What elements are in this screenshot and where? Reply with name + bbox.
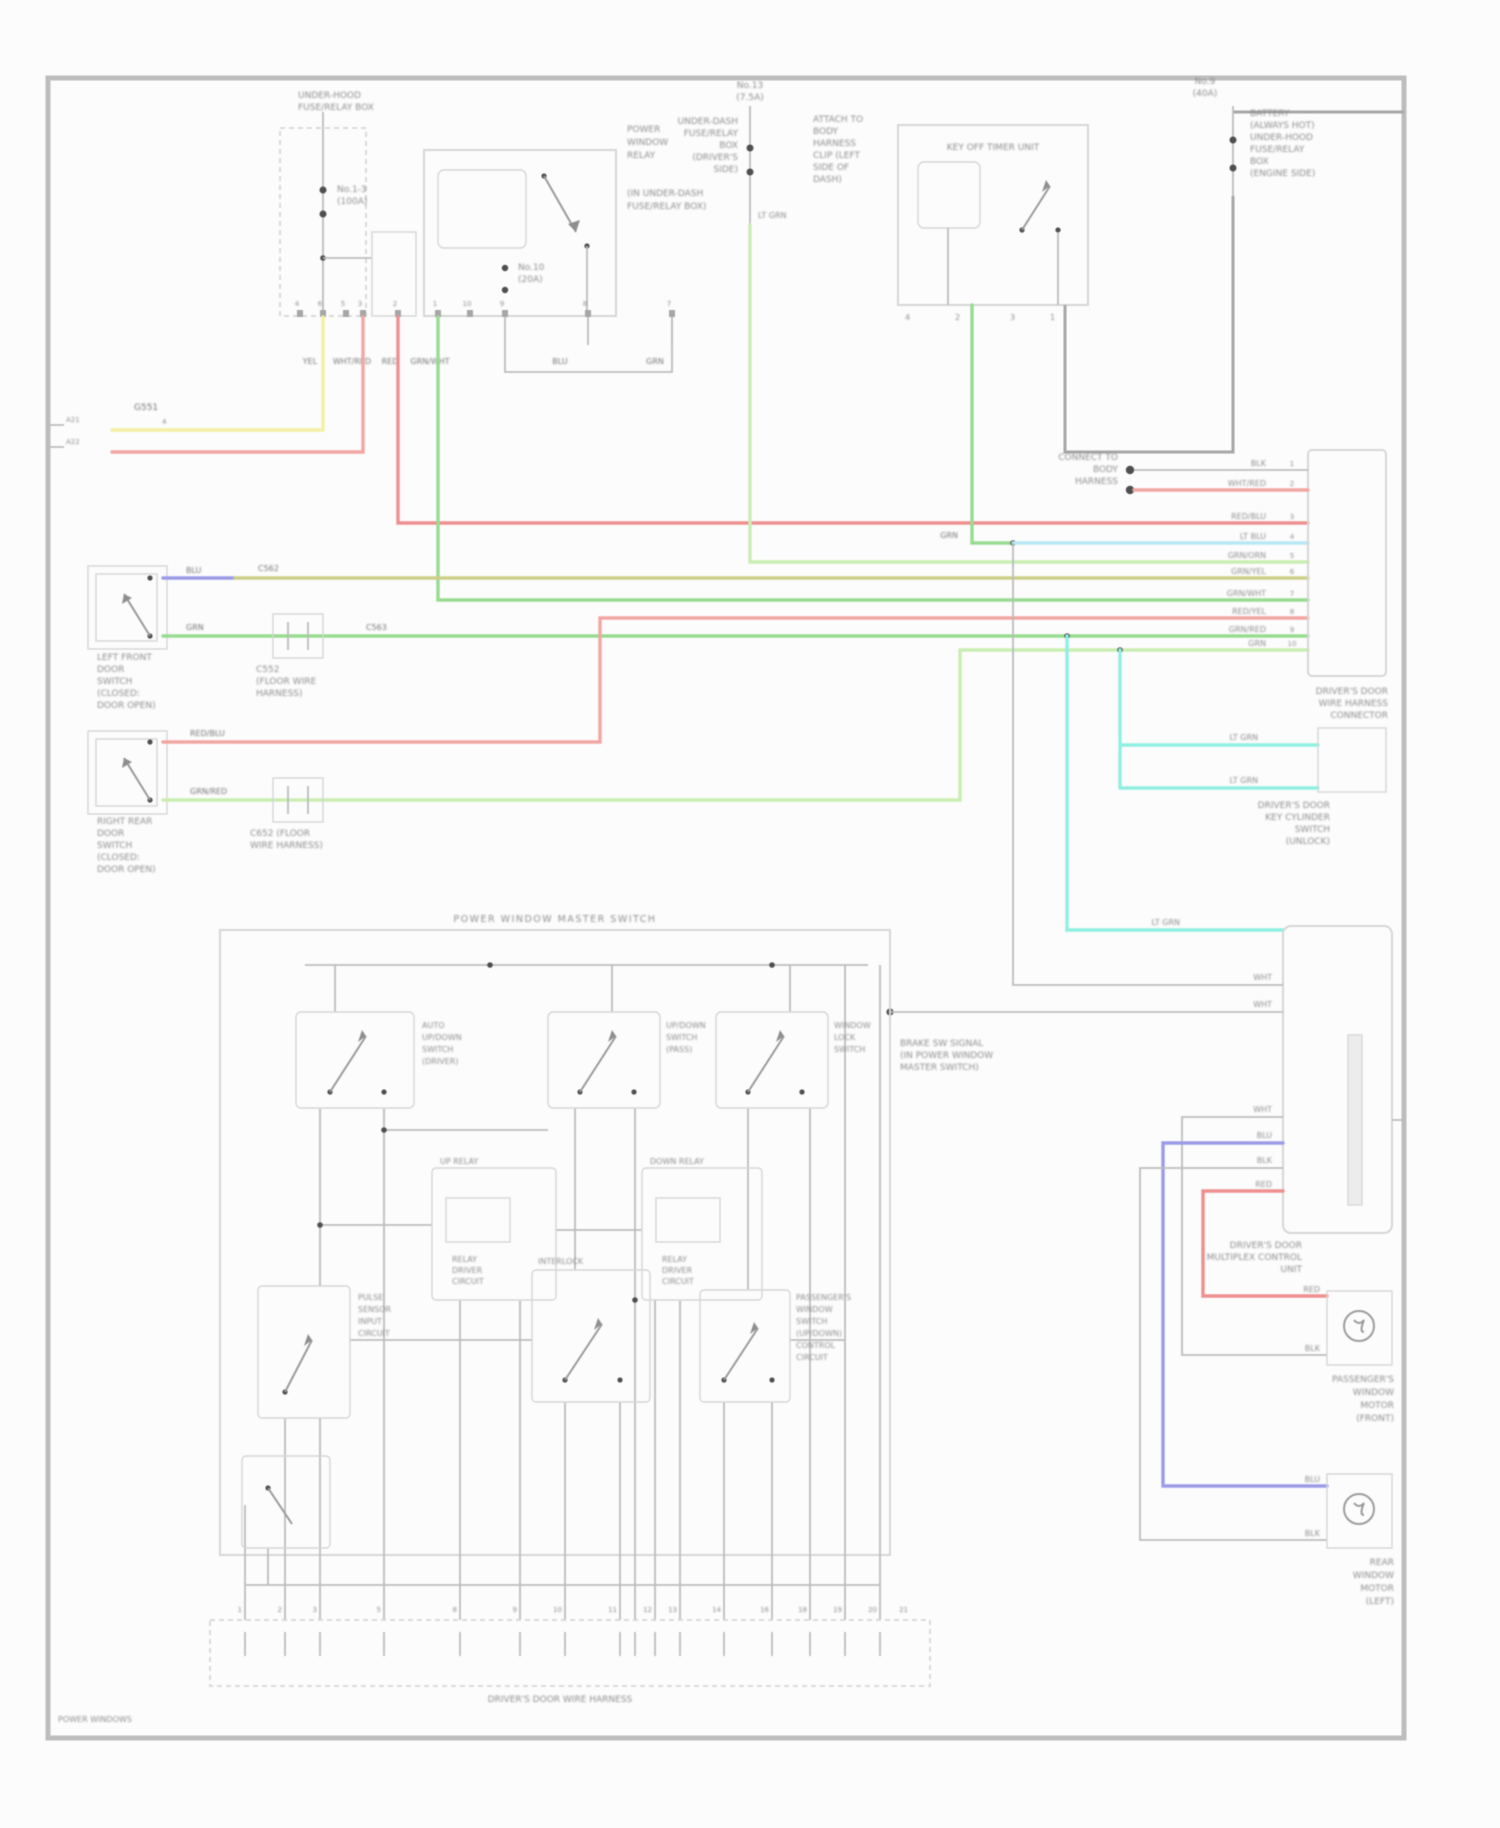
fuse-terminal-icon — [502, 287, 508, 293]
switch1-label: SWITCH — [97, 677, 132, 687]
switch1-label: LEFT FRONT — [97, 653, 152, 663]
fuse-r-label: BATTERY — [1250, 109, 1290, 119]
ground-terminals: G551 4 A21 A22 — [48, 317, 363, 452]
fuse-terminal-icon — [747, 145, 754, 152]
cell-label: SWITCH — [834, 1045, 865, 1054]
switch2-green-wire — [163, 650, 1308, 800]
cell-label: UP/DOWN — [422, 1033, 462, 1042]
wire-code: BLK — [1251, 459, 1267, 468]
module-feed-label: (IN POWER WINDOW — [900, 1051, 993, 1061]
motor1-box — [1327, 1291, 1392, 1365]
pin-number: 6 — [1290, 568, 1295, 576]
pin-label: 20 — [868, 1606, 877, 1614]
cell-outline — [258, 1286, 350, 1418]
wire-code: GRN/RED — [1229, 625, 1266, 634]
fuse-r-title: No.9 — [1195, 77, 1216, 87]
mid-fuse-title: (7.5A) — [736, 93, 764, 103]
ground-id: G551 — [134, 403, 158, 413]
switch1-label: DOOR OPEN) — [97, 701, 156, 711]
switch-arm — [748, 1036, 784, 1092]
pin-label: 10 — [553, 1606, 562, 1614]
diagram-page: POWER WINDOWS UNDER-HOOD FUSE/RELAY BOX … — [0, 0, 1500, 1828]
border-tick-label: A22 — [66, 438, 80, 446]
mid-fuse-title: No.13 — [737, 81, 763, 91]
motor1-label: MOTOR — [1360, 1401, 1394, 1411]
wire-code: WHT/RED — [1228, 479, 1266, 488]
wire-code: LT BLU — [1240, 532, 1266, 541]
relay1-label: POWER — [627, 125, 660, 135]
keycyl-box — [1318, 728, 1386, 792]
cell-outline — [716, 1012, 828, 1108]
pin-label: 2 — [278, 1606, 282, 1614]
relay2-pin: 4 — [905, 313, 910, 322]
multiplex-module: WHT WHT BRAKE SW SIGNAL (IN POWER WINDOW… — [886, 543, 1404, 1275]
connector-label: WIRE HARNESS) — [250, 841, 323, 851]
pin-number: 2 — [1290, 480, 1294, 488]
fuse-r-label: FUSE/RELAY — [1250, 145, 1305, 155]
wire-code-row: YEL WHT/RED RED GRN/WHT BLU GRN — [302, 357, 664, 366]
connector-label: C652 (FLOOR — [250, 829, 310, 839]
switch2-label: RIGHT REAR — [97, 817, 152, 827]
wire-code: C562 — [258, 564, 279, 573]
switch-arrow-icon — [608, 1030, 616, 1042]
pin-number: 7 — [667, 300, 671, 308]
relay1-label: WINDOW — [627, 138, 668, 148]
cell-inner — [656, 1198, 720, 1242]
connector-label: C552 — [256, 665, 279, 675]
switch2-label: (CLOSED: — [97, 853, 140, 863]
cell-title: DOWN RELAY — [650, 1157, 704, 1166]
junction-dot — [632, 1297, 638, 1303]
contact-dot — [631, 1089, 636, 1094]
relay1-label: RELAY — [627, 151, 656, 161]
motor2-label: WINDOW — [1353, 1571, 1394, 1581]
pin-label: 21 — [899, 1606, 908, 1614]
switch-arm — [1022, 186, 1050, 230]
contact-dot — [1055, 227, 1060, 232]
cell-label: WINDOW — [796, 1305, 833, 1314]
border-tick-label: A21 — [66, 416, 80, 424]
green-run-wire — [438, 317, 1308, 600]
cell-inner — [446, 1198, 510, 1242]
mid-fuse-right-label: ATTACH TO — [813, 115, 863, 125]
fuse-r-label: UNDER-HOOD — [1250, 133, 1313, 143]
relay2-title: KEY OFF TIMER UNIT — [947, 143, 1040, 153]
door-harness-connector: CONNECT TO BODY HARNESS BLK WHT/RED RED/… — [1058, 450, 1388, 721]
wire-code: LT GRN — [1229, 733, 1258, 742]
pin-numbers: 4 6 5 3 2 1 10 9 8 7 — [295, 300, 671, 308]
motor-winding-icon — [1354, 1320, 1364, 1332]
switch-arrow-icon — [358, 1030, 366, 1042]
fuse-a-label: (100A) — [337, 197, 367, 207]
master-cell-lock: WINDOW LOCK SWITCH — [716, 1012, 871, 1108]
contact-dot — [617, 1377, 622, 1382]
master-internal-wires — [245, 965, 880, 1620]
junction-dot — [769, 962, 775, 968]
pin-number: 1 — [433, 300, 437, 308]
door-switch-1: LEFT FRONT DOOR SWITCH (CLOSED: DOOR OPE… — [88, 566, 167, 711]
cell-label: RELAY — [452, 1255, 477, 1264]
switch-arm — [580, 1036, 616, 1092]
wire-code: GRN/ORN — [1228, 551, 1266, 560]
switch-arrow-icon — [122, 758, 132, 768]
master-down-relay: DOWN RELAY RELAY DRIVER CIRCUIT — [642, 1157, 762, 1300]
wire-code: BLU — [1305, 1475, 1321, 1484]
pin-label: 19 — [833, 1606, 842, 1614]
pin-label: 16 — [760, 1606, 769, 1614]
relay1-label: FUSE/RELAY BOX) — [627, 202, 706, 212]
cell-outline — [532, 1270, 650, 1402]
mid-fuse-code: LT GRN — [758, 211, 787, 220]
connector-caption: DRIVER'S DOOR — [1316, 687, 1388, 697]
door-switch-2: RIGHT REAR DOOR SWITCH (CLOSED: DOOR OPE… — [88, 731, 167, 875]
green-relay-wire — [972, 305, 1013, 543]
wire-code: WHT — [1253, 1105, 1272, 1114]
relay2-pin: 3 — [1010, 313, 1015, 322]
cell-label: SWITCH — [666, 1033, 697, 1042]
pin-label: 1 — [238, 1606, 242, 1614]
switch-arrow-icon — [594, 1318, 602, 1330]
switch1-label: DOOR — [97, 665, 124, 675]
cell-label: CIRCUIT — [796, 1353, 828, 1362]
junction-dot — [487, 962, 493, 968]
module-outline — [1283, 926, 1392, 1233]
relay2-pin: 2 — [955, 313, 960, 322]
mid-fuse-right-label: HARNESS — [813, 139, 856, 149]
cell-label: CONTROL — [796, 1341, 836, 1350]
switch2-label: DOOR OPEN) — [97, 865, 156, 875]
master-small-cell — [242, 1456, 330, 1548]
motor2-label: REAR — [1370, 1558, 1394, 1568]
power-window-relay: POWER WINDOW RELAY (IN UNDER-DASH FUSE/R… — [424, 125, 706, 372]
wire-code: BLK — [1305, 1529, 1321, 1538]
mid-fuse-right-label: DASH) — [813, 175, 842, 185]
contact-dot — [147, 575, 152, 580]
cell-label: DRIVER — [662, 1266, 693, 1275]
pin-label: 9 — [513, 1606, 517, 1614]
master-pulse-cell: PULSE SENSOR INPUT CIRCUIT — [258, 1286, 391, 1418]
keycyl-label: DRIVER'S DOOR — [1258, 801, 1330, 811]
master-up-relay: UP RELAY RELAY DRIVER CIRCUIT — [432, 1157, 556, 1300]
pin-label: 13 — [668, 1606, 677, 1614]
inline-connector-1: C552 (FLOOR WIRE HARNESS) — [256, 614, 323, 699]
pin-number: 1 — [1290, 460, 1294, 468]
fuse-terminal-icon — [1230, 165, 1237, 172]
cell-label: DRIVER — [452, 1266, 483, 1275]
motor2-label: MOTOR — [1360, 1584, 1394, 1594]
red-run-wire — [398, 317, 1308, 523]
wire-code: RED/BLU — [1231, 512, 1266, 521]
junction-dot — [317, 1222, 323, 1228]
module-label: UNIT — [1281, 1265, 1303, 1275]
fuse-a-label: No.1-3 — [337, 185, 367, 195]
pin-number: 7 — [1290, 590, 1294, 598]
pin-label: 12 — [643, 1606, 652, 1614]
cyan-wires — [1120, 650, 1318, 788]
mid-fuse-left-label: UNDER-DASH — [678, 117, 738, 127]
switch-arrow-icon — [1042, 180, 1050, 192]
master-switch: POWER WINDOW MASTER SWITCH AUTO UP/DOWN … — [210, 914, 930, 1705]
switch2-outer — [88, 731, 167, 814]
pin-label: 14 — [712, 1606, 721, 1614]
switch1-outer — [88, 566, 167, 649]
red-wire — [112, 317, 363, 452]
cell-outline — [548, 1012, 660, 1108]
pin-label: 5 — [377, 1606, 381, 1614]
mid-fuse-left-label: SIDE) — [714, 165, 739, 175]
cell-outline — [432, 1168, 556, 1300]
fuse-r-label: BOX — [1250, 157, 1269, 167]
ground-code: 4 — [162, 418, 167, 426]
switch-arm — [724, 1328, 758, 1380]
motor2-label: (LEFT) — [1366, 1597, 1394, 1607]
cell-label: WINDOW — [834, 1021, 871, 1030]
mid-fuse-right-label: CLIP (LEFT — [813, 151, 860, 161]
relay2-stub-wires — [948, 228, 1058, 305]
switch-arm — [268, 1488, 292, 1524]
motor-icon — [1344, 1311, 1374, 1341]
wire-code: WHT — [1253, 1000, 1272, 1009]
pin-number: 8 — [1290, 608, 1294, 616]
module-label: DRIVER'S DOOR — [1230, 1241, 1302, 1251]
switch-arm — [565, 1324, 602, 1380]
battery-feed-wire — [1065, 196, 1233, 452]
pin-number: 4 — [295, 300, 300, 308]
switch-arm — [285, 1340, 312, 1392]
key-cylinder-switch: LT GRN LT GRN LT GRN DRIVER'S DOOR KEY C… — [1064, 633, 1386, 930]
contact-dot — [769, 1377, 774, 1382]
keycyl-label: (UNLOCK) — [1286, 837, 1330, 847]
wire-code: WHT — [1253, 973, 1272, 982]
cell-label: INPUT — [358, 1317, 382, 1326]
wire-code: RED — [382, 357, 399, 366]
palegreen-run-wire — [750, 225, 1308, 562]
cell-label: UP/DOWN — [666, 1021, 706, 1030]
cell-label: CIRCUIT — [662, 1277, 694, 1286]
fuse-b-label: (20A) — [518, 275, 543, 285]
stub-wires — [588, 317, 672, 345]
switch1-label: (CLOSED: — [97, 689, 140, 699]
fuse-terminal-icon — [320, 187, 327, 194]
strip-connector — [210, 1620, 930, 1686]
pin-number: 9 — [1290, 626, 1294, 634]
fuse-b-label: No.10 — [518, 263, 545, 273]
wire-code: RED/YEL — [1232, 607, 1266, 616]
relay2-coil — [918, 162, 980, 228]
wire-code: GRN — [940, 531, 958, 540]
master-cell-driver: AUTO UP/DOWN SWITCH (DRIVER) — [296, 1012, 462, 1108]
motor2-box — [1327, 1474, 1392, 1548]
cell-label: CIRCUIT — [358, 1329, 390, 1338]
motor-winding-icon — [1354, 1503, 1364, 1515]
switch-arrow-icon — [750, 1322, 758, 1334]
pin-label: 11 — [608, 1606, 617, 1614]
cell-outline — [642, 1168, 762, 1300]
cell-label: CIRCUIT — [452, 1277, 484, 1286]
mid-fuse-left-label: BOX — [719, 141, 738, 151]
master-title: POWER WINDOW MASTER SWITCH — [453, 914, 656, 925]
motor2-gray-wire — [1140, 1168, 1327, 1540]
relay2-pin: 1 — [1050, 313, 1055, 322]
cell-outline — [242, 1456, 330, 1548]
module-terminal-bar — [1348, 1035, 1362, 1205]
mid-fuse-right-label: BODY — [813, 127, 839, 137]
wire-code: BLU — [186, 566, 202, 575]
wire-code: RED — [1255, 1180, 1272, 1189]
master-interlock-cell: INTERLOCK — [532, 1257, 650, 1402]
motor1-label: PASSENGER'S — [1332, 1375, 1394, 1385]
wire-code: BLU — [552, 357, 568, 366]
cell-label: PASSENGER'S — [796, 1293, 851, 1302]
wire-code: GRN/WHT — [1227, 589, 1266, 598]
junction-dot — [381, 1127, 387, 1133]
wire-code: GRN — [186, 623, 204, 632]
keyoff-relay: KEY OFF TIMER UNIT 4 2 3 1 — [898, 125, 1088, 322]
wire-code: WHT/RED — [333, 357, 371, 366]
pin-number: 2 — [393, 300, 397, 308]
pin-number: 6 — [318, 300, 323, 308]
pin-number: 10 — [1288, 640, 1297, 648]
pin-number: 9 — [500, 300, 504, 308]
wire-code: C563 — [366, 623, 387, 632]
connector-caption: WIRE HARNESS — [1319, 699, 1389, 709]
fuse-terminal-icon — [1230, 137, 1237, 144]
fuse-terminal-icon — [747, 169, 754, 176]
fuse-r-title: (40A) — [1193, 89, 1218, 99]
switch2-label: DOOR — [97, 829, 124, 839]
strip-pin-ticks — [245, 1632, 880, 1656]
splice-label: CONNECT TO — [1058, 453, 1118, 463]
fuse-r-label: (ALWAYS HOT) — [1250, 121, 1315, 131]
cell-label: (DRIVER) — [422, 1057, 458, 1066]
cell-label: SWITCH — [422, 1045, 453, 1054]
cell-label: AUTO — [422, 1021, 445, 1030]
mid-fuse-left-label: FUSE/RELAY — [684, 129, 739, 139]
wire-code: BLK — [1257, 1156, 1273, 1165]
fuse-terminal-icon — [320, 211, 327, 218]
switch-arrow-icon — [776, 1030, 784, 1042]
pin-number: 5 — [341, 300, 345, 308]
keycyl-label: KEY CYLINDER — [1265, 813, 1330, 823]
cell-label: SENSOR — [358, 1305, 391, 1314]
mid-fuse-left-label: (DRIVER'S — [692, 153, 738, 163]
wire-code: BLK — [1305, 1344, 1321, 1353]
relay1-label: (IN UNDER-DASH — [627, 189, 703, 199]
master-cell-passenger: UP/DOWN SWITCH (PASS) — [548, 1012, 706, 1108]
cell-title: UP RELAY — [440, 1157, 478, 1166]
pin-number: 4 — [1290, 533, 1295, 541]
module-label: MULTIPLEX CONTROL — [1207, 1253, 1302, 1263]
mid-fuse-right-label: SIDE OF — [813, 163, 849, 173]
cell-outline — [700, 1290, 790, 1402]
pin-label: 18 — [798, 1606, 807, 1614]
wire-code: YEL — [302, 357, 318, 366]
pin-label: 3 — [313, 1606, 317, 1614]
connector-caption: CONNECTOR — [1330, 711, 1388, 721]
pin-label: 8 — [453, 1606, 457, 1614]
strip-caption: DRIVER'S DOOR WIRE HARNESS — [488, 1695, 633, 1705]
inline-connector-2: C652 (FLOOR WIRE HARNESS) — [250, 778, 323, 851]
switch-arm — [330, 1036, 366, 1092]
master-passenger-cell: PASSENGER'S WINDOW SWITCH (UP/DOWN) CONT… — [700, 1290, 851, 1402]
cell-label: PULSE — [358, 1293, 383, 1302]
splice-label: BODY — [1093, 465, 1119, 475]
module-feed-label: MASTER SWITCH) — [900, 1063, 979, 1073]
cell-title: INTERLOCK — [538, 1257, 584, 1266]
fuse-r-label: (ENGINE SIDE) — [1250, 169, 1315, 179]
pin-number: 3 — [1290, 513, 1294, 521]
pin-number: 5 — [1290, 552, 1294, 560]
keycyl-label: SWITCH — [1295, 825, 1330, 835]
wire-code: GRN/RED — [190, 787, 227, 796]
cell-label: (PASS) — [666, 1045, 692, 1054]
strip-pin-labels: 1 2 3 5 8 9 10 11 12 13 14 16 18 19 20 2… — [238, 1606, 908, 1614]
relay1-coil — [438, 170, 526, 248]
cell-label: LOCK — [834, 1033, 856, 1042]
connector-body — [1308, 450, 1386, 676]
splice-label: HARNESS — [1075, 477, 1118, 487]
wiring-diagram: POWER WINDOWS UNDER-HOOD FUSE/RELAY BOX … — [0, 0, 1500, 1828]
switch2-label: SWITCH — [97, 841, 132, 851]
fuse-terminal-icon — [502, 265, 508, 271]
splice-dot — [1126, 466, 1134, 474]
wire-code: GRN — [646, 357, 664, 366]
cell-outline — [296, 1012, 414, 1108]
page-footer: POWER WINDOWS — [58, 1715, 132, 1724]
wire-code: RED — [1303, 1285, 1320, 1294]
motor1-label: WINDOW — [1353, 1388, 1394, 1398]
connector-label: (FLOOR WIRE — [256, 677, 316, 687]
wire-code: GRN — [1248, 639, 1266, 648]
wire-code: LT GRN — [1229, 776, 1258, 785]
motor-icon — [1344, 1494, 1374, 1524]
wire-code: GRN/WHT — [410, 357, 449, 366]
contact-dot — [799, 1089, 804, 1094]
cell-label: (UP/DOWN) — [796, 1329, 842, 1338]
pin-number: 10 — [463, 300, 472, 308]
wire-code: GRN/YEL — [1231, 567, 1266, 576]
motor2-blue-wire — [1163, 1143, 1327, 1486]
motor1-label: (FRONT) — [1356, 1414, 1394, 1424]
wire-code: BLU — [1257, 1131, 1273, 1140]
fusebox-title-line: FUSE/RELAY BOX — [298, 103, 374, 113]
pin-number: 8 — [583, 300, 587, 308]
contact-dot — [381, 1089, 386, 1094]
underhood-fuse-box: UNDER-HOOD FUSE/RELAY BOX No.1-3 (100A) — [280, 91, 416, 316]
contact-dot — [147, 739, 152, 744]
wire-code: RED/BLU — [190, 729, 225, 738]
cell-label: SWITCH — [796, 1317, 827, 1326]
cell-label: RELAY — [662, 1255, 687, 1264]
module-feed-label: BRAKE SW SIGNAL — [900, 1039, 983, 1049]
fusebox-title-line: UNDER-HOOD — [298, 91, 361, 101]
connector-label: HARNESS) — [256, 689, 303, 699]
page-border — [48, 78, 1404, 1738]
yellow-wire — [112, 317, 323, 430]
wire-code: LT GRN — [1151, 918, 1180, 927]
battery-fuse: No.9 (40A) BATTERY (ALWAYS HOT) UNDER-HO… — [1193, 77, 1316, 196]
pin-number: 3 — [358, 300, 362, 308]
switch-arrow-icon — [122, 594, 132, 604]
